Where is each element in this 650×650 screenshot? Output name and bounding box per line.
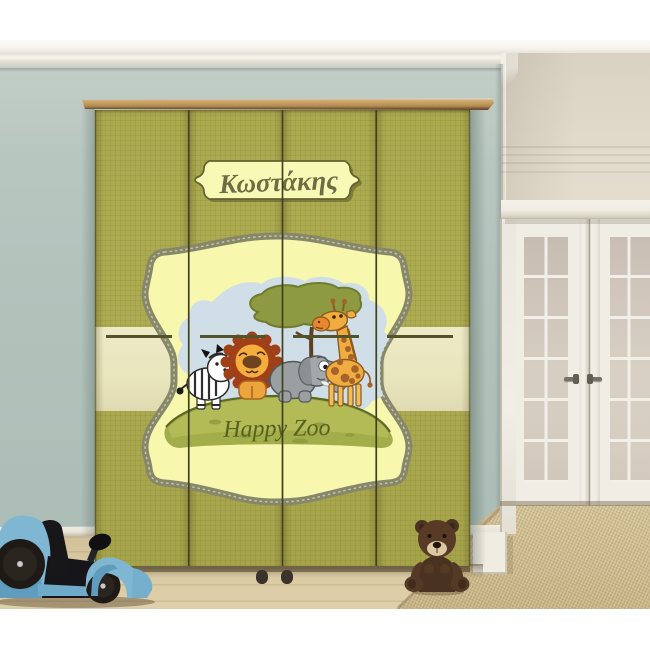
svg-text:Κωστάκης: Κωστάκης bbox=[218, 165, 339, 199]
svg-text:Happy Zoo: Happy Zoo bbox=[222, 415, 331, 443]
